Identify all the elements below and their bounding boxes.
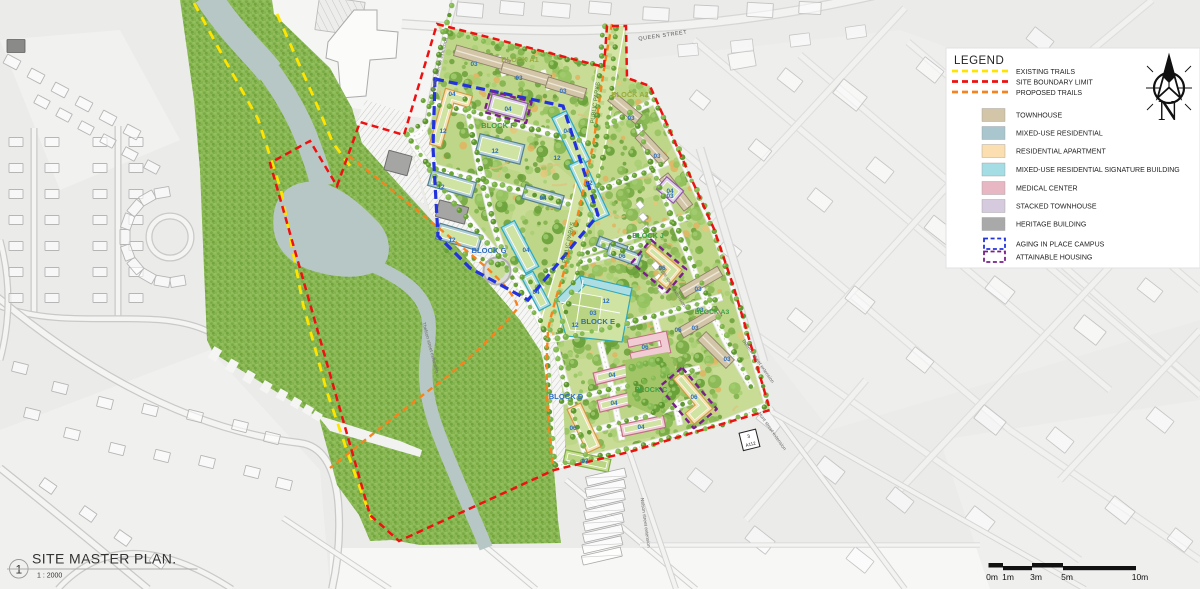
svg-text:MIXED-USE RESIDENTIAL: MIXED-USE RESIDENTIAL [1016, 131, 1103, 138]
svg-text:06: 06 [641, 344, 649, 351]
svg-text:03: 03 [470, 61, 478, 68]
svg-text:BLOCK E: BLOCK E [581, 317, 615, 326]
svg-text:06: 06 [690, 394, 698, 401]
svg-text:03: 03 [627, 115, 635, 122]
svg-text:04: 04 [532, 289, 540, 296]
svg-text:N: N [1158, 96, 1178, 127]
svg-text:04: 04 [637, 424, 645, 431]
svg-text:04: 04 [504, 106, 512, 113]
svg-text:03: 03 [691, 325, 699, 332]
svg-text:03: 03 [559, 88, 567, 95]
svg-text:10m: 10m [1132, 572, 1149, 582]
svg-text:12: 12 [437, 184, 445, 191]
svg-text:03: 03 [515, 75, 523, 82]
svg-text:04: 04 [666, 188, 674, 195]
svg-text:5m: 5m [1061, 572, 1073, 582]
svg-text:STACKED TOWNHOUSE: STACKED TOWNHOUSE [1016, 204, 1097, 211]
svg-text:RESIDENTIAL APARTMENT: RESIDENTIAL APARTMENT [1016, 149, 1106, 156]
svg-text:0m: 0m [986, 572, 998, 582]
svg-text:03: 03 [723, 356, 731, 363]
svg-text:BLOCK D: BLOCK D [549, 392, 584, 401]
svg-text:04: 04 [539, 195, 547, 202]
svg-text:06: 06 [569, 425, 577, 432]
svg-text:HERITAGE BUILDING: HERITAGE BUILDING [1016, 222, 1086, 229]
svg-text:04: 04 [608, 372, 616, 379]
svg-text:3m: 3m [1030, 572, 1042, 582]
svg-text:03: 03 [694, 286, 702, 293]
svg-text:03: 03 [581, 458, 589, 465]
svg-text:12: 12 [602, 298, 610, 305]
svg-text:BLOCK G: BLOCK G [471, 246, 506, 255]
svg-text:12: 12 [491, 148, 499, 155]
svg-text:AGING IN PLACE CAMPUS: AGING IN PLACE CAMPUS [1016, 242, 1105, 249]
svg-text:LEGEND: LEGEND [954, 55, 1004, 67]
svg-text:BLOCK J: BLOCK J [632, 231, 664, 240]
svg-text:MIXED-USE RESIDENTIAL SIGNATUR: MIXED-USE RESIDENTIAL SIGNATURE BUILDING [1016, 167, 1180, 174]
svg-text:BLOCK A3: BLOCK A3 [695, 309, 730, 316]
svg-text:BLOCK A2: BLOCK A2 [611, 90, 649, 99]
svg-text:04: 04 [610, 400, 618, 407]
svg-text:12: 12 [571, 322, 579, 329]
svg-text:TOWNHOUSE: TOWNHOUSE [1016, 113, 1062, 120]
svg-text:04: 04 [563, 128, 571, 135]
svg-text:BLOCK F: BLOCK F [481, 121, 515, 130]
svg-text:BLOCK C: BLOCK C [635, 385, 668, 394]
svg-text:04: 04 [522, 247, 530, 254]
svg-text:EXISTING TRAILS: EXISTING TRAILS [1016, 69, 1075, 76]
svg-text:SITE BOUNDARY LIMIT: SITE BOUNDARY LIMIT [1016, 80, 1093, 87]
svg-text:06: 06 [618, 253, 626, 260]
svg-text:MEDICAL CENTER: MEDICAL CENTER [1016, 186, 1078, 193]
svg-text:ATTAINABLE HOUSING: ATTAINABLE HOUSING [1016, 255, 1092, 262]
svg-text:12: 12 [585, 180, 593, 187]
svg-text:1m: 1m [1002, 572, 1014, 582]
svg-text:PROPOSED TRAILS: PROPOSED TRAILS [1016, 90, 1082, 97]
svg-text:12: 12 [439, 128, 447, 135]
svg-text:03: 03 [589, 310, 597, 317]
svg-text:04: 04 [448, 91, 456, 98]
svg-text:SITE MASTER PLAN.: SITE MASTER PLAN. [32, 551, 177, 567]
svg-text:03: 03 [653, 153, 661, 160]
svg-text:12: 12 [448, 237, 456, 244]
svg-text:12: 12 [553, 155, 561, 162]
svg-text:06: 06 [674, 327, 682, 334]
svg-text:1 : 2000: 1 : 2000 [37, 573, 62, 580]
svg-text:BLOCK A1: BLOCK A1 [501, 55, 539, 64]
